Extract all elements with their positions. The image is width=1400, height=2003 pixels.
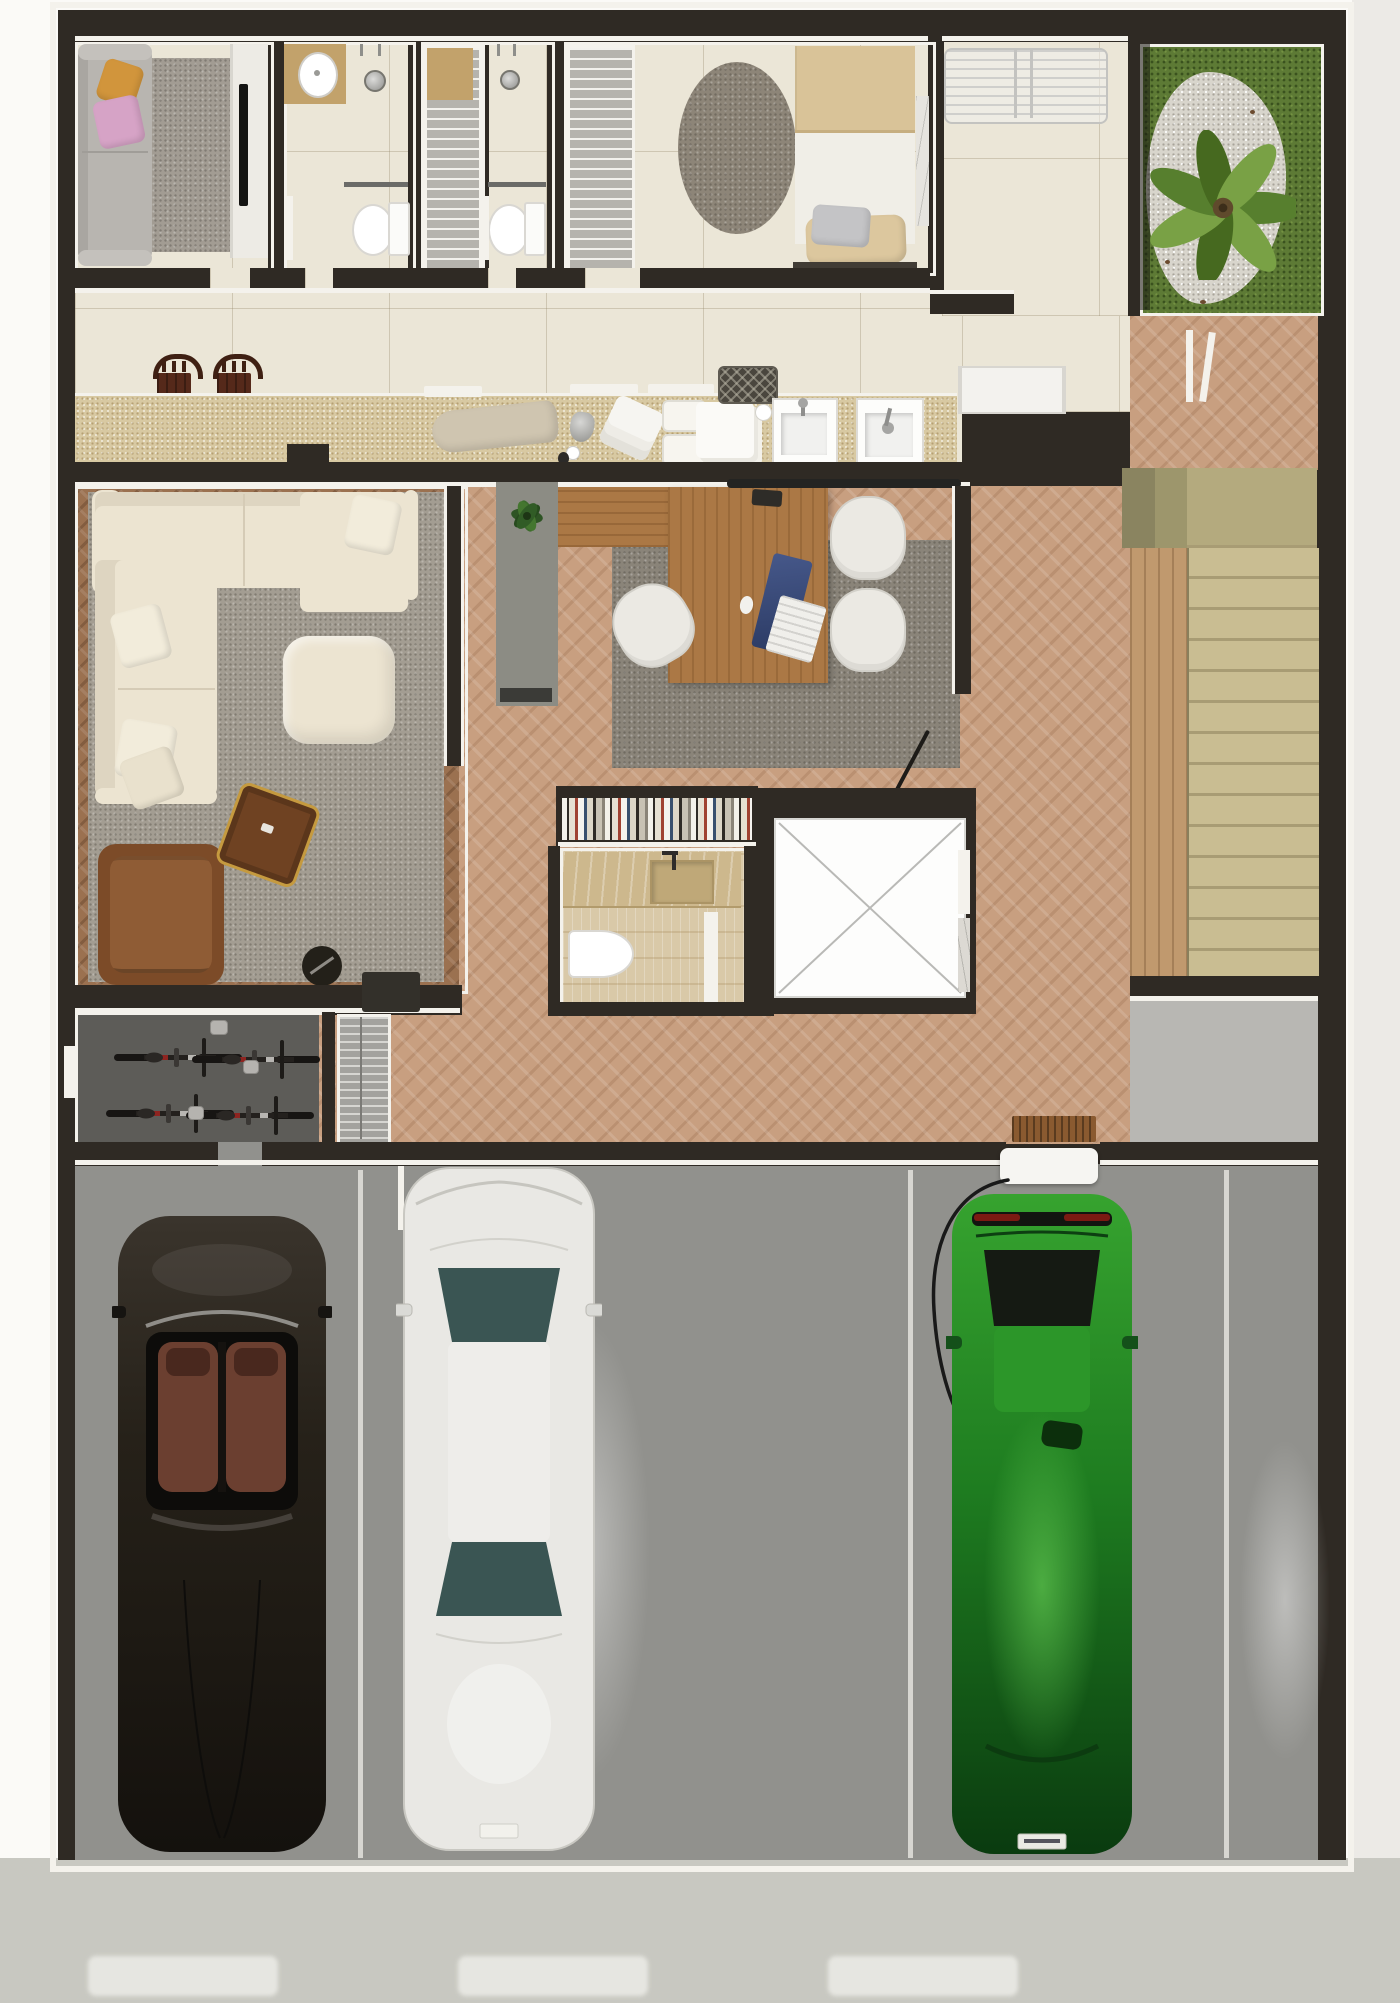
sofa-cushion-line: [118, 688, 215, 690]
elevator-door: [958, 850, 970, 914]
stall-divider-line: [358, 1170, 363, 1858]
foyer-cabinet: [958, 366, 1066, 414]
bike-room-right-wall: [322, 1012, 335, 1146]
terrace-bottom-wall: [930, 294, 1014, 314]
drying-rack-bar: [1014, 50, 1017, 118]
bedroom-wardrobe: [567, 45, 635, 273]
bedroom-round-rug: [678, 62, 796, 234]
plant-leaves: [510, 499, 544, 534]
grey-sofa-cushion-line: [82, 151, 148, 153]
pink-pillow: [92, 94, 147, 151]
bicycle: [186, 1096, 314, 1135]
partition-trim: [461, 486, 464, 766]
shower-hook: [378, 44, 381, 56]
floor-plan-render: [0, 0, 1400, 2003]
robot-vacuum: [302, 946, 342, 986]
marble-side-table: [916, 96, 929, 226]
rear-window: [984, 1250, 1100, 1326]
toilet-tank-2: [524, 202, 546, 256]
laundry-sink: [856, 398, 924, 466]
bicycles: [98, 1030, 320, 1140]
stair-landing-block: [1122, 468, 1155, 548]
helmet: [188, 1106, 204, 1120]
side-mirror: [586, 1304, 602, 1316]
bed-duvet: [795, 46, 915, 133]
roof: [994, 1326, 1090, 1412]
side-mirror: [112, 1306, 126, 1318]
tv: [239, 84, 248, 206]
office-chair: [830, 588, 906, 672]
silver-pillow: [811, 204, 872, 248]
stool-spindle: [222, 361, 226, 372]
desk-return: [558, 487, 674, 547]
tail-light: [1064, 1214, 1110, 1221]
office-chair: [830, 496, 906, 580]
shower-hook: [513, 44, 516, 56]
entry-console: [362, 972, 420, 1012]
stool-spindle: [182, 361, 186, 372]
leather-armchair: [98, 844, 224, 985]
stairs-bottom-trim: [1130, 996, 1318, 1001]
garden-dirt-speck: [1200, 300, 1206, 304]
roof: [448, 1342, 550, 1542]
garden-dirt-speck: [1250, 110, 1255, 114]
powder-faucet-handle: [662, 851, 678, 855]
media-cabinet: [230, 44, 268, 258]
right-margin: [1352, 0, 1400, 1862]
corridor-wall-trim: [75, 288, 930, 293]
elevator-car: [774, 818, 966, 998]
helmet: [243, 1060, 259, 1074]
stair-stringer: [1130, 548, 1187, 994]
green-sports-car: [946, 1186, 1138, 1864]
sink-basin: [781, 413, 827, 455]
shoe-rack-divider: [360, 1017, 362, 1139]
wall-bedroom-terrace: [928, 42, 944, 292]
wall-shower-bedroom: [547, 42, 565, 270]
woven-basket: [718, 366, 778, 404]
stair-landing-block: [1155, 468, 1187, 548]
shower-hook: [497, 44, 500, 56]
powder-door-leaf: [704, 912, 718, 1002]
windshield: [438, 1268, 560, 1342]
stool-spindle: [162, 361, 166, 372]
top-wall-trim: [75, 36, 928, 41]
office-right-wall: [955, 486, 971, 694]
wall-lounge-bath: [268, 42, 284, 270]
stair-top-tread: [1187, 468, 1317, 548]
elevator-marble-jamb: [958, 918, 970, 992]
sofa-cushion-line: [243, 494, 245, 586]
dark-convertible-car: [112, 1210, 332, 1858]
terrace-bottom-trim: [930, 290, 1014, 294]
rear-window: [436, 1542, 562, 1616]
garden-door-leaf: [1186, 330, 1193, 402]
powder-bottom-wall: [548, 1002, 774, 1016]
floor-light-reflection: [1240, 1440, 1330, 1760]
stair-hall-floor: [1130, 316, 1318, 470]
powder-toilet: [568, 930, 634, 978]
table-item: [260, 823, 274, 835]
palm-tree: [1150, 130, 1296, 280]
panel-device: [500, 688, 552, 702]
side-mirror: [318, 1306, 332, 1318]
side-mirror: [396, 1304, 412, 1316]
ottoman: [283, 636, 395, 744]
glass-partition-2: [488, 182, 546, 187]
glass-partition: [344, 182, 408, 187]
bookshelf-books: [562, 798, 752, 840]
sofa-arm-right: [404, 490, 418, 600]
license-plate: [480, 1824, 518, 1838]
toilet-tank: [388, 202, 410, 256]
shower-head: [364, 70, 386, 92]
driveway-light-dash: [88, 1956, 278, 1996]
stall-divider-line: [908, 1170, 913, 1858]
bookshelf-trim: [558, 842, 756, 847]
drying-rack-bar: [1030, 50, 1033, 118]
potted-plant: [498, 482, 556, 548]
tail-light: [974, 1214, 1020, 1221]
stool-spindle: [232, 361, 236, 372]
bath-door-leaf: [286, 196, 293, 260]
cup: [755, 404, 772, 421]
shower-room-door-leaf: [482, 196, 489, 260]
garage-top-trim: [1100, 1160, 1318, 1165]
stool-spindle: [242, 361, 246, 372]
understairs-landing: [1130, 996, 1318, 1144]
linen-stack: [696, 402, 754, 458]
vacuum-slash: [310, 956, 335, 975]
helmet: [210, 1020, 228, 1035]
office-right-trim: [952, 486, 955, 694]
powder-left-wall: [548, 846, 560, 1008]
terrace-wall-trim: [942, 36, 1128, 41]
living-office-partition: [447, 486, 461, 766]
shower-head-2: [500, 70, 520, 90]
grey-sofa-armrest-bottom: [78, 250, 152, 266]
stair-treads: [1187, 548, 1319, 976]
laundry-sink: [772, 398, 838, 464]
armchair-cushion: [110, 856, 212, 973]
shoe-rack: [337, 1014, 391, 1148]
palm-leaves: [1150, 130, 1296, 280]
driveway-light-dash: [828, 1956, 1018, 1996]
appliance-shelf: [570, 384, 638, 396]
appliance-shelf: [424, 386, 482, 397]
desk-accessory: [751, 489, 782, 507]
elevator-x-symbol: [776, 820, 964, 996]
shower-hook: [360, 44, 363, 56]
lounge-rug: [148, 58, 232, 252]
stool-spindle: [172, 361, 176, 372]
sink-drain: [314, 70, 320, 76]
powder-sink: [650, 860, 714, 904]
sink-faucet-head: [798, 398, 808, 408]
side-mirror: [946, 1336, 962, 1349]
garden-edge-shadow: [1140, 44, 1150, 310]
side-mirror: [1122, 1336, 1138, 1349]
grey-sofa-armrest-top: [78, 44, 152, 60]
bike-room-door-leaf: [64, 1046, 78, 1098]
stall-divider-line: [1224, 1170, 1229, 1858]
appliance-shelf: [648, 384, 714, 396]
sliding-door-track: [727, 479, 961, 488]
partition-trim: [444, 486, 447, 766]
white-sedan-car: [396, 1164, 602, 1856]
doormat: [1012, 1116, 1096, 1142]
drying-rack: [944, 48, 1108, 124]
driveway-light-dash: [458, 1956, 648, 1996]
wall-bath-closet: [408, 42, 422, 270]
closet-counter-top: [427, 48, 473, 100]
